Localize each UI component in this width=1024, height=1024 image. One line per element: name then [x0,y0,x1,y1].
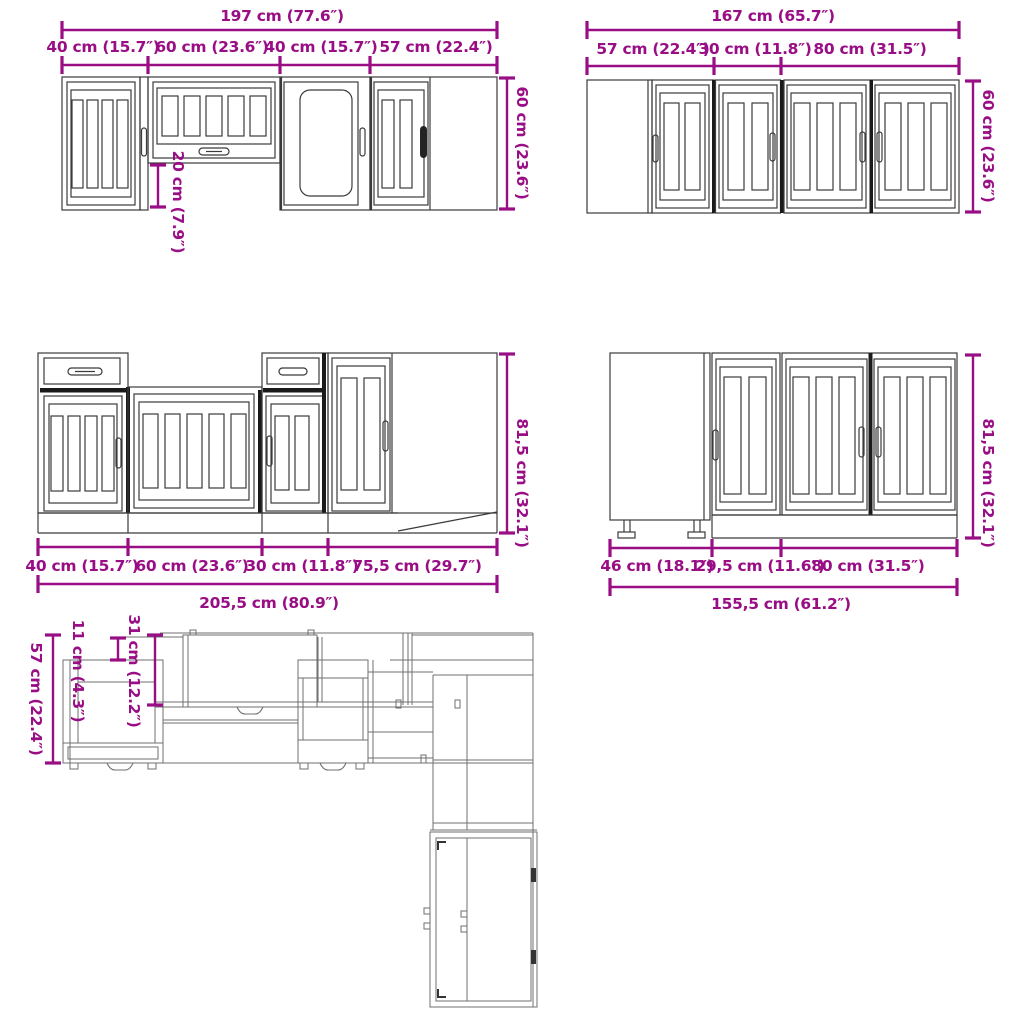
wall-run-right-drawing [587,80,959,213]
dim-base-left-seg-2: 60 cm (23.6″) [135,557,248,575]
dim-plan-depth-total: 57 cm (22.4″) [27,642,45,755]
cabinet-line-drawing [0,0,1024,1024]
dim-base-left-seg-3: 30 cm (11.8″) [245,557,358,575]
dim-wall-right-height: 60 cm (23.6″) [979,89,997,202]
dim-wall-left-seg-1: 40 cm (15.7″) [46,38,159,56]
dim-plan-depth-upper: 11 cm (4.3″) [69,620,87,723]
base-run-right-drawing [610,353,957,538]
dim-base-left-total: 205,5 cm (80.9″) [199,594,339,612]
dim-base-right-seg-3: 80 cm (31.5″) [811,557,924,575]
dim-wall-left-total: 197 cm (77.6″) [220,7,344,25]
wall-run-left-drawing [62,77,497,210]
dim-wall-left-seg-4: 57 cm (22.4″) [379,38,492,56]
dim-wall-right-seg-3: 80 cm (31.5″) [813,40,926,58]
dim-wall-left-seg-3: 40 cm (15.7″) [264,38,377,56]
dim-base-left-seg-1: 40 cm (15.7″) [25,557,138,575]
dim-wall-right-total: 167 cm (65.7″) [711,7,835,25]
dim-base-right-height: 81,5 cm (32.1″) [979,418,997,547]
dim-wall-right-seg-1: 57 cm (22.4″) [596,40,709,58]
base-run-left-drawing [38,353,497,533]
dim-base-left-height: 81,5 cm (32.1″) [513,418,531,547]
dim-base-right-seg-2: 29,5 cm (11.6″) [695,557,824,575]
diagram-canvas: 197 cm (77.6″) 40 cm (15.7″) 60 cm (23.6… [0,0,1024,1024]
dim-wall-right-seg-2: 30 cm (11.8″) [698,40,811,58]
dim-wall-left-seg-2: 60 cm (23.6″) [155,38,268,56]
dim-base-right-total: 155,5 cm (61.2″) [711,595,851,613]
dim-wall-left-height: 60 cm (23.6″) [513,86,531,199]
dim-plan-depth-wall: 31 cm (12.2″) [125,614,143,727]
dim-wall-left-gap: 20 cm (7.9″) [169,151,187,254]
dim-base-left-seg-4: 75,5 cm (29.7″) [352,557,481,575]
